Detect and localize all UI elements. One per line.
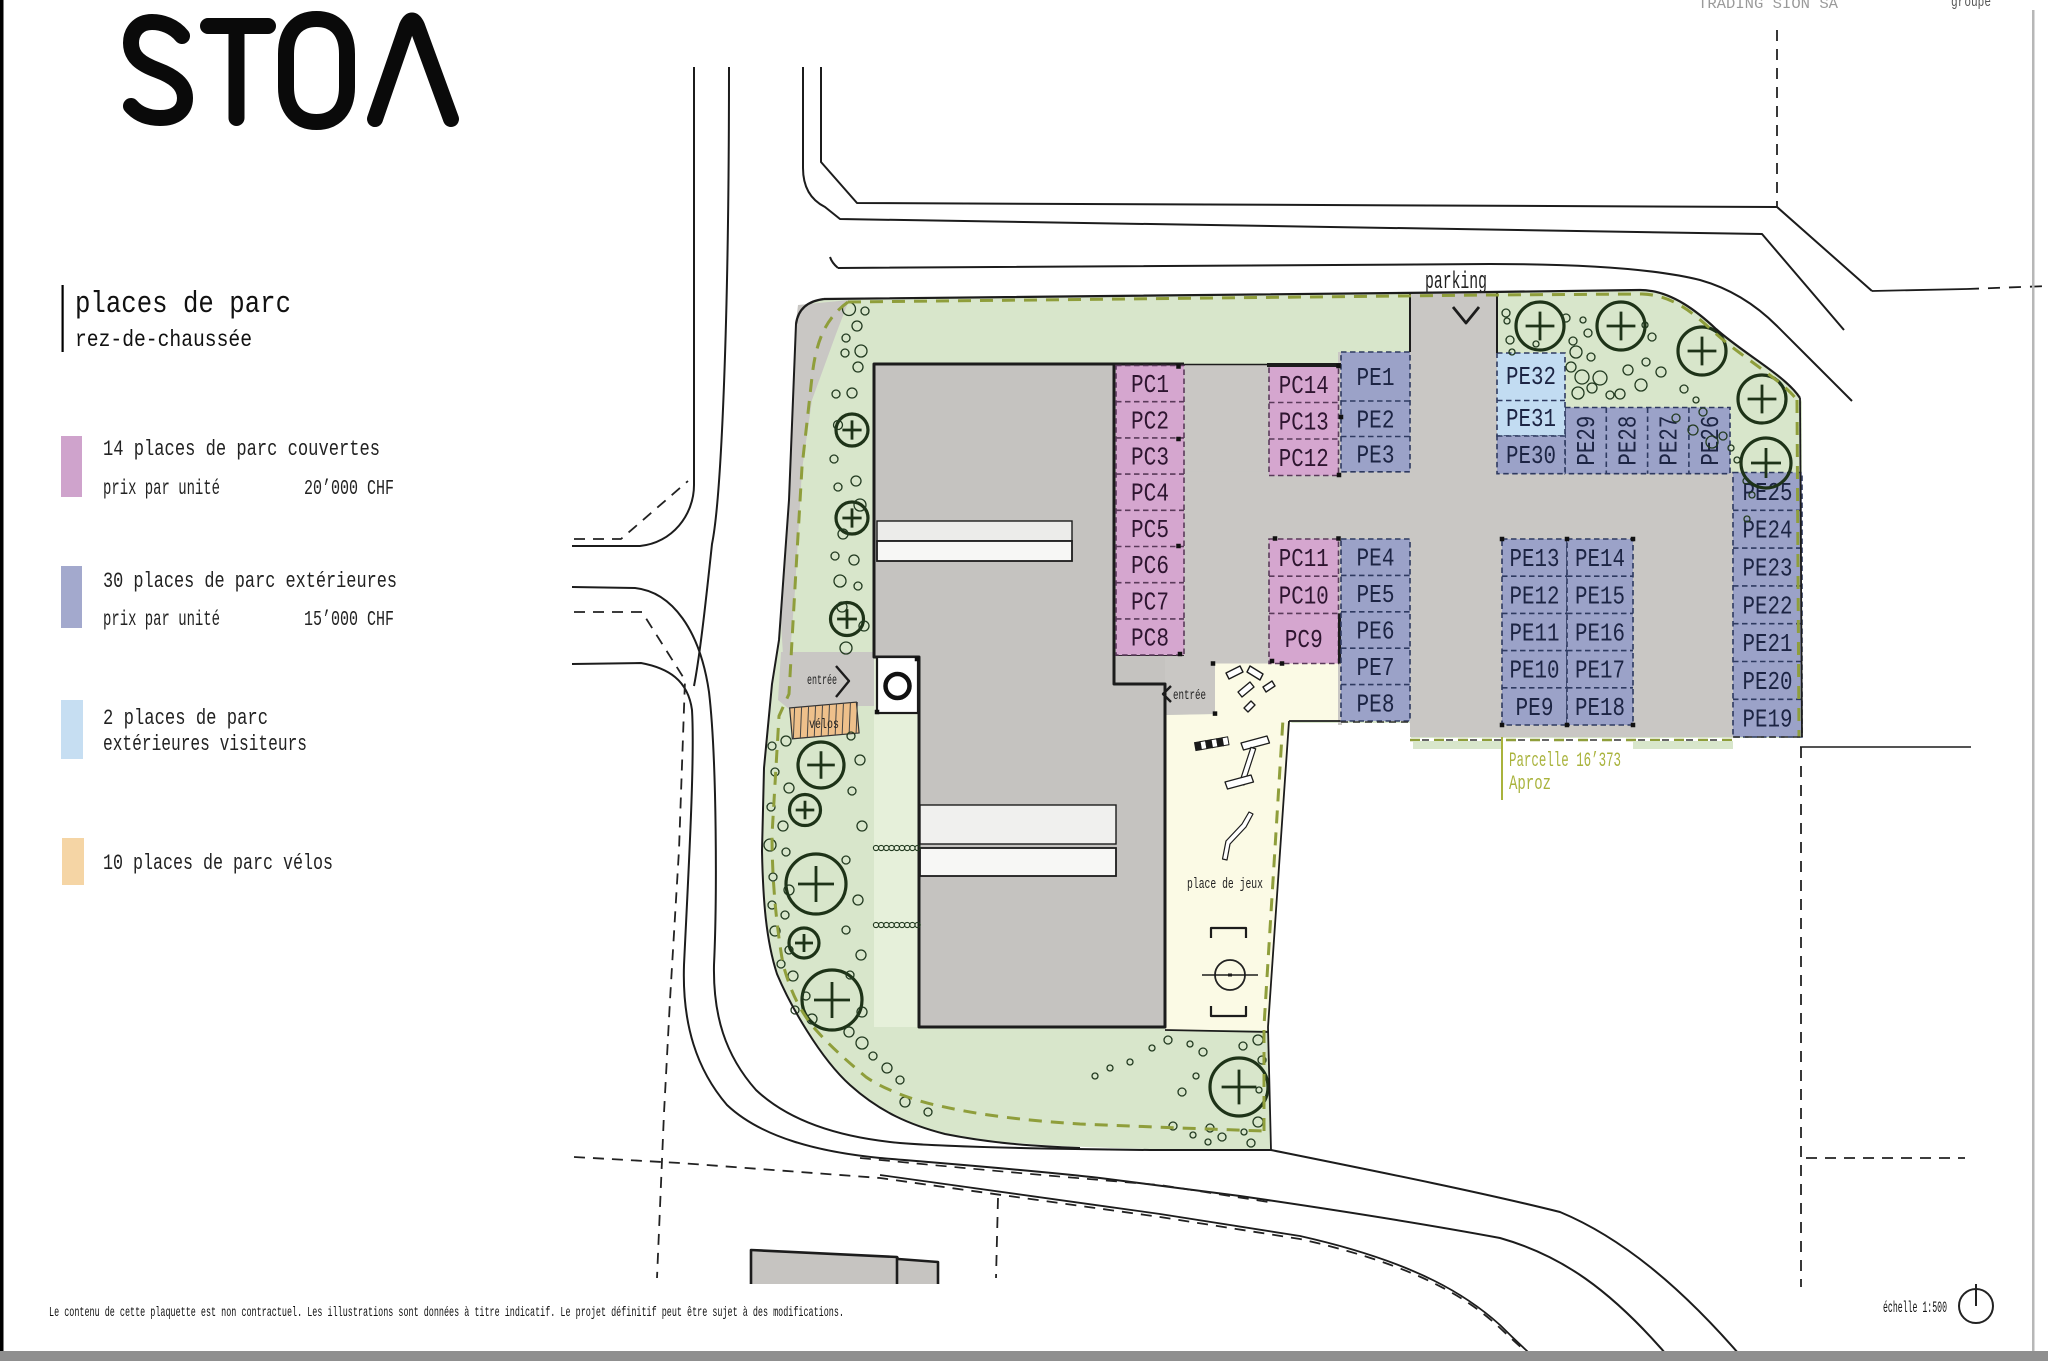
svg-text:PE27: PE27 bbox=[1655, 416, 1685, 466]
svg-text:PC11: PC11 bbox=[1279, 544, 1329, 574]
svg-text:PE8: PE8 bbox=[1357, 689, 1395, 719]
svg-text:PC1: PC1 bbox=[1131, 370, 1169, 400]
svg-text:PC14: PC14 bbox=[1279, 371, 1329, 401]
svg-text:PE23: PE23 bbox=[1743, 554, 1793, 584]
svg-text:Le contenu de cette plaquette: Le contenu de cette plaquette est non co… bbox=[49, 1305, 844, 1321]
svg-text:PE1: PE1 bbox=[1357, 363, 1395, 393]
svg-text:PE9: PE9 bbox=[1516, 693, 1554, 723]
svg-text:PE4: PE4 bbox=[1357, 544, 1395, 574]
svg-text:parking: parking bbox=[1425, 269, 1487, 296]
svg-text:échelle 1:500: échelle 1:500 bbox=[1883, 1299, 1947, 1317]
svg-text:rez-de-chaussée: rez-de-chaussée bbox=[75, 327, 252, 353]
svg-text:PE28: PE28 bbox=[1613, 416, 1643, 466]
svg-text:PE10: PE10 bbox=[1510, 656, 1560, 686]
svg-text:groupe: groupe bbox=[1951, 0, 1991, 11]
svg-text:PE20: PE20 bbox=[1743, 667, 1793, 697]
svg-text:PE7: PE7 bbox=[1357, 653, 1395, 683]
svg-text:PC9: PC9 bbox=[1285, 625, 1323, 655]
svg-text:PE2: PE2 bbox=[1357, 405, 1395, 435]
svg-text:vélos: vélos bbox=[809, 717, 839, 733]
svg-text:PE15: PE15 bbox=[1575, 581, 1625, 611]
svg-text:PC6: PC6 bbox=[1131, 551, 1169, 581]
svg-text:PE29: PE29 bbox=[1572, 416, 1602, 466]
svg-text:15’000 CHF: 15’000 CHF bbox=[304, 609, 394, 632]
svg-text:entrée: entrée bbox=[807, 673, 837, 689]
svg-text:PC10: PC10 bbox=[1279, 581, 1329, 611]
svg-text:PE32: PE32 bbox=[1506, 362, 1556, 392]
svg-text:PC7: PC7 bbox=[1131, 587, 1169, 617]
svg-text:PE5: PE5 bbox=[1357, 580, 1395, 610]
svg-text:places de parc: places de parc bbox=[75, 287, 291, 322]
svg-text:20’000 CHF: 20’000 CHF bbox=[304, 478, 394, 501]
svg-text:10 places de parc vélos: 10 places de parc vélos bbox=[103, 851, 333, 876]
svg-text:entrée: entrée bbox=[1173, 688, 1206, 704]
svg-text:2 places de parc: 2 places de parc bbox=[103, 706, 268, 731]
svg-text:PE22: PE22 bbox=[1743, 591, 1793, 621]
svg-text:PC5: PC5 bbox=[1131, 515, 1169, 545]
svg-text:PE21: PE21 bbox=[1743, 629, 1793, 659]
svg-text:place de jeux: place de jeux bbox=[1187, 876, 1263, 893]
svg-text:PE18: PE18 bbox=[1575, 693, 1625, 723]
svg-text:PC12: PC12 bbox=[1279, 444, 1329, 474]
svg-text:TRADING SION SA: TRADING SION SA bbox=[1698, 0, 1838, 13]
svg-text:extérieures visiteurs: extérieures visiteurs bbox=[103, 732, 307, 757]
svg-text:PC3: PC3 bbox=[1131, 443, 1169, 473]
svg-text:PC2: PC2 bbox=[1131, 406, 1169, 436]
svg-text:PE3: PE3 bbox=[1357, 441, 1395, 471]
svg-text:PE13: PE13 bbox=[1510, 544, 1560, 574]
svg-text:PE31: PE31 bbox=[1506, 404, 1556, 434]
svg-text:PE26: PE26 bbox=[1696, 416, 1726, 466]
svg-text:PE12: PE12 bbox=[1510, 581, 1560, 611]
svg-text:PE19: PE19 bbox=[1743, 705, 1793, 735]
svg-text:prix par unité: prix par unité bbox=[103, 478, 220, 501]
svg-text:PE6: PE6 bbox=[1357, 617, 1395, 647]
svg-text:PE17: PE17 bbox=[1575, 656, 1625, 686]
svg-text:PC4: PC4 bbox=[1131, 479, 1169, 509]
svg-text:Aproz: Aproz bbox=[1509, 773, 1551, 796]
svg-text:30 places de parc extérieures: 30 places de parc extérieures bbox=[103, 569, 397, 594]
svg-text:PE14: PE14 bbox=[1575, 544, 1625, 574]
svg-text:PC8: PC8 bbox=[1131, 624, 1169, 654]
svg-text:PE16: PE16 bbox=[1575, 619, 1625, 649]
svg-text:prix par unité: prix par unité bbox=[103, 609, 220, 632]
svg-text:PC13: PC13 bbox=[1279, 407, 1329, 437]
svg-text:Parcelle 16’373: Parcelle 16’373 bbox=[1509, 750, 1621, 773]
svg-text:PE11: PE11 bbox=[1510, 619, 1560, 649]
svg-text:14 places de parc couvertes: 14 places de parc couvertes bbox=[103, 437, 380, 462]
svg-text:PE30: PE30 bbox=[1506, 441, 1556, 471]
